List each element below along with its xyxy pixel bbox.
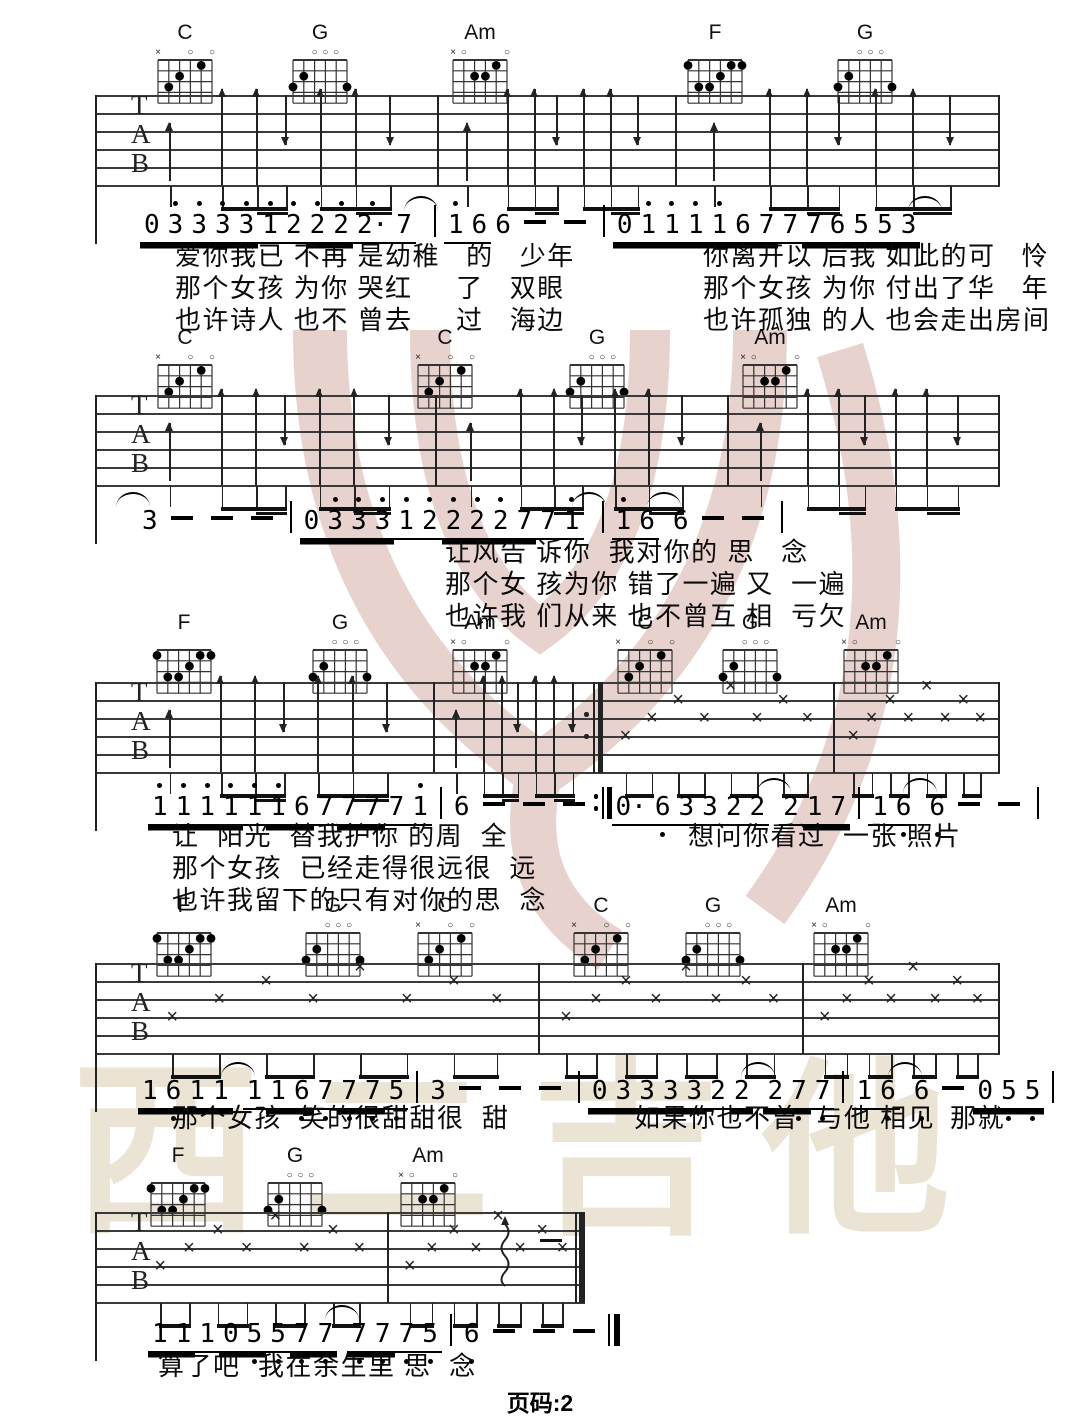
octave-dot-above bbox=[291, 201, 296, 206]
octave-dot-above bbox=[669, 201, 674, 206]
mute-stroke-x: × bbox=[213, 989, 225, 1009]
melody-barline bbox=[603, 205, 605, 237]
svg-text:○: ○ bbox=[705, 920, 711, 931]
chord-name: F bbox=[148, 612, 220, 634]
chord-name: Am bbox=[392, 1145, 464, 1167]
melody-barline bbox=[1037, 787, 1039, 819]
tie-arc bbox=[647, 492, 681, 507]
mute-stroke-x: × bbox=[646, 708, 658, 728]
melody-dash bbox=[998, 802, 1020, 806]
melody-dash bbox=[211, 516, 233, 520]
strum-up-arrow bbox=[470, 423, 472, 481]
tie-arc bbox=[757, 778, 791, 793]
tab-letter-a: A bbox=[131, 989, 151, 1016]
mute-stroke-x: × bbox=[819, 1007, 831, 1027]
tie-arc bbox=[903, 778, 937, 793]
strum-down-arrow bbox=[637, 95, 639, 145]
svg-text:○: ○ bbox=[332, 637, 338, 648]
octave-dot-above bbox=[173, 201, 178, 206]
lyric-line: 那个女孩 笑的很甜甜很 甜 bbox=[172, 1098, 509, 1135]
strum-up-arrow bbox=[320, 89, 322, 185]
staff-line bbox=[95, 1017, 1000, 1019]
melody-barline bbox=[450, 1314, 452, 1346]
tab-letter-b: B bbox=[131, 737, 149, 764]
mute-stroke-x: × bbox=[929, 989, 941, 1009]
tab-letter-a: A bbox=[131, 708, 151, 735]
mute-stroke-x: × bbox=[260, 971, 272, 991]
mute-stroke-x: × bbox=[620, 726, 632, 746]
svg-text:○: ○ bbox=[715, 920, 721, 931]
staff-line bbox=[95, 167, 1000, 169]
svg-text:○: ○ bbox=[751, 352, 757, 363]
mute-stroke-x: × bbox=[958, 690, 970, 710]
chord-name: F bbox=[679, 22, 751, 44]
staff-line bbox=[95, 1035, 1000, 1037]
mute-stroke-x: × bbox=[241, 1238, 253, 1258]
chord-name: C bbox=[565, 895, 637, 917]
svg-text:○: ○ bbox=[335, 920, 341, 931]
strum-up-arrow bbox=[466, 123, 468, 181]
svg-text:○: ○ bbox=[447, 352, 453, 363]
strum-up-arrow bbox=[352, 676, 354, 772]
mute-stroke-x: × bbox=[885, 989, 897, 1009]
tab-letter-t: T bbox=[131, 679, 148, 706]
melody-note: 3 bbox=[371, 504, 395, 540]
strum-up-arrow bbox=[583, 89, 585, 185]
svg-text:○: ○ bbox=[504, 47, 510, 58]
mute-stroke-x: × bbox=[514, 1238, 526, 1258]
melody-barline bbox=[781, 501, 783, 533]
svg-text:○: ○ bbox=[452, 1170, 458, 1181]
svg-text:○: ○ bbox=[287, 1170, 293, 1181]
strum-up-arrow bbox=[255, 389, 257, 485]
mute-stroke-x: × bbox=[212, 1220, 224, 1240]
melody-note: 1 bbox=[148, 790, 172, 826]
strum-down-arrow bbox=[949, 95, 951, 145]
melody-note: 2 bbox=[418, 504, 442, 540]
mute-stroke-x: × bbox=[863, 971, 875, 991]
chord-name: G bbox=[677, 895, 749, 917]
svg-text:○: ○ bbox=[308, 1170, 314, 1181]
mute-stroke-x: × bbox=[710, 989, 722, 1009]
strum-up-arrow bbox=[254, 676, 256, 772]
melody-note: 3 bbox=[138, 504, 162, 538]
tie-arc bbox=[572, 492, 606, 507]
strum-up-arrow bbox=[319, 389, 321, 485]
svg-text:○: ○ bbox=[603, 920, 609, 931]
svg-text:○: ○ bbox=[852, 637, 858, 648]
svg-text:○: ○ bbox=[589, 352, 595, 363]
tab-staff: TAB bbox=[95, 395, 1000, 486]
lyric-line: 也许我 们从来 也不曾互 相 亏欠 bbox=[445, 596, 846, 633]
tab-staff: TAB×××××××××××××××× bbox=[95, 1212, 585, 1303]
melody-dash bbox=[171, 516, 193, 520]
mute-stroke-x: × bbox=[536, 1220, 548, 1240]
svg-text:×: × bbox=[811, 920, 817, 931]
octave-dot-below bbox=[660, 832, 665, 837]
mute-stroke-x: × bbox=[154, 1256, 166, 1276]
strum-up-arrow bbox=[926, 389, 928, 485]
strum-down-arrow bbox=[386, 682, 388, 732]
strum-up-arrow bbox=[317, 676, 319, 772]
mute-stroke-x: × bbox=[183, 1238, 195, 1258]
staff-line bbox=[95, 449, 1000, 451]
melody-dash bbox=[958, 802, 980, 806]
melody-note: 3 bbox=[323, 504, 347, 540]
melody-dash bbox=[524, 220, 546, 224]
svg-text:○: ○ bbox=[461, 47, 467, 58]
mute-stroke-x: × bbox=[699, 708, 711, 728]
svg-text:○: ○ bbox=[187, 352, 193, 363]
mute-stroke-x: × bbox=[560, 1007, 572, 1027]
mute-stroke-x: × bbox=[921, 676, 933, 696]
svg-text:×: × bbox=[415, 920, 421, 931]
melody-dash bbox=[702, 516, 724, 520]
octave-dot-above bbox=[339, 201, 344, 206]
svg-text:×: × bbox=[415, 352, 421, 363]
lyric-line: 如果你也不曾 与他 相见 bbox=[634, 1098, 935, 1135]
svg-text:○: ○ bbox=[322, 47, 328, 58]
svg-text:○: ○ bbox=[610, 352, 616, 363]
strum-down-arrow bbox=[864, 395, 866, 445]
octave-dot-above bbox=[498, 497, 503, 502]
mute-stroke-x: × bbox=[470, 1238, 482, 1258]
melody-note: 0 bbox=[613, 208, 637, 244]
chord-name: Am bbox=[444, 22, 516, 44]
octave-dot-above bbox=[646, 201, 651, 206]
strum-up-arrow bbox=[838, 389, 840, 485]
strum-up-arrow bbox=[455, 710, 457, 768]
strum-down-arrow bbox=[572, 682, 574, 732]
melody-barline bbox=[290, 501, 292, 533]
melody-dash bbox=[493, 1329, 515, 1333]
octave-dot-below bbox=[1006, 1116, 1011, 1121]
tie-arc bbox=[404, 196, 438, 211]
staff-line bbox=[95, 185, 1000, 187]
strum-up-arrow bbox=[806, 89, 808, 185]
tab-letter-t: T bbox=[131, 392, 148, 419]
octave-dot-above bbox=[197, 201, 202, 206]
mute-stroke-x: × bbox=[354, 1238, 366, 1258]
tab-letter-a: A bbox=[131, 1238, 151, 1265]
tie-arc bbox=[741, 1062, 775, 1077]
octave-dot-above bbox=[228, 783, 233, 788]
melody-note: 3 bbox=[347, 504, 371, 540]
chord-name: G bbox=[284, 22, 356, 44]
strum-down-arrow bbox=[284, 395, 286, 445]
mute-stroke-x: × bbox=[307, 989, 319, 1009]
tab-letter-b: B bbox=[131, 150, 149, 177]
tie-arc bbox=[221, 1062, 255, 1077]
melody-note: 1 bbox=[138, 1074, 162, 1110]
mute-stroke-x: × bbox=[426, 1238, 438, 1258]
svg-text:○: ○ bbox=[794, 352, 800, 363]
melody-barline bbox=[440, 787, 442, 819]
tab-letter-t: T bbox=[131, 92, 148, 119]
octave-dot-above bbox=[205, 783, 210, 788]
octave-dot-above bbox=[621, 497, 626, 502]
svg-text:○: ○ bbox=[409, 1170, 415, 1181]
tab-letter-t: T bbox=[131, 1209, 148, 1236]
mute-stroke-x: × bbox=[620, 971, 632, 991]
strum-up-arrow bbox=[912, 89, 914, 185]
chord-name: G bbox=[829, 22, 901, 44]
strum-up-arrow bbox=[534, 89, 536, 185]
staff-line bbox=[95, 718, 1000, 720]
strum-down-arrow bbox=[285, 95, 287, 145]
melody-dash bbox=[523, 802, 545, 806]
svg-text:○: ○ bbox=[187, 47, 193, 58]
strum-up-arrow bbox=[483, 676, 485, 772]
svg-text:○: ○ bbox=[333, 47, 339, 58]
mute-stroke-x: × bbox=[884, 690, 896, 710]
melody-repeat-bar bbox=[594, 787, 612, 819]
octave-dot-above bbox=[252, 783, 257, 788]
mute-stroke-x: × bbox=[768, 989, 780, 1009]
melody-barline bbox=[578, 1071, 580, 1103]
melody-note: 5 bbox=[1021, 1074, 1045, 1110]
octave-dot-below bbox=[1030, 1116, 1035, 1121]
tie-arc bbox=[908, 196, 942, 211]
melody-barline bbox=[858, 787, 860, 819]
melody-dash bbox=[564, 220, 586, 224]
svg-text:○: ○ bbox=[469, 352, 475, 363]
svg-text:×: × bbox=[155, 352, 161, 363]
octave-dot-above bbox=[453, 201, 458, 206]
strum-down-arrow bbox=[581, 395, 583, 445]
strum-up-arrow bbox=[713, 123, 715, 181]
mute-stroke-x: × bbox=[972, 989, 984, 1009]
mute-stroke-x: × bbox=[841, 989, 853, 1009]
strum-down-arrow bbox=[388, 395, 390, 445]
strum-up-arrow bbox=[355, 89, 357, 185]
melody-dash bbox=[459, 1086, 481, 1090]
octave-dot-above bbox=[404, 497, 409, 502]
melody-dash bbox=[742, 516, 764, 520]
melody-note: 1 bbox=[637, 208, 661, 244]
mute-stroke-x: × bbox=[801, 708, 813, 728]
repeat-dot bbox=[584, 734, 589, 739]
tab-letter-b: B bbox=[131, 1018, 149, 1045]
staff-line bbox=[95, 754, 1000, 756]
svg-text:○: ○ bbox=[209, 47, 215, 58]
mute-stroke-x: × bbox=[866, 708, 878, 728]
octave-dot-above bbox=[427, 497, 432, 502]
melody-note: 0· bbox=[612, 790, 651, 826]
mute-stroke-x: × bbox=[298, 1238, 310, 1258]
lyric-line: 也许我留下的只有对你的思 念 bbox=[172, 880, 547, 917]
lyric-line: 那就 bbox=[950, 1098, 1005, 1135]
staff-line bbox=[95, 113, 1000, 115]
melody-note: 1 bbox=[660, 208, 684, 244]
mute-stroke-x: × bbox=[448, 971, 460, 991]
strum-up-arrow bbox=[807, 389, 809, 485]
strum-up-arrow bbox=[760, 423, 762, 481]
chord-name: G bbox=[561, 327, 633, 349]
octave-dot-above bbox=[717, 201, 722, 206]
lyric-line: 也许孤独 的人 也会走出房间 bbox=[703, 300, 1050, 337]
strum-up-arrow bbox=[221, 389, 223, 485]
strum-up-arrow bbox=[553, 676, 555, 772]
strum-down-arrow bbox=[957, 395, 959, 445]
mute-stroke-x: × bbox=[902, 708, 914, 728]
staff-line bbox=[95, 131, 1000, 133]
staff-line bbox=[95, 1302, 585, 1304]
svg-text:○: ○ bbox=[647, 637, 653, 648]
octave-dot-above bbox=[380, 497, 385, 502]
tab-letter-b: B bbox=[131, 450, 149, 477]
tab-staff: TAB bbox=[95, 95, 1000, 186]
svg-text:○: ○ bbox=[726, 920, 732, 931]
svg-text:○: ○ bbox=[209, 352, 215, 363]
strum-up-arrow bbox=[553, 389, 555, 485]
svg-text:○: ○ bbox=[297, 1170, 303, 1181]
lyric-line: 想问你看过 一张 照片 bbox=[688, 816, 962, 853]
strum-up-arrow bbox=[614, 389, 616, 485]
mute-stroke-x: × bbox=[680, 957, 692, 977]
mute-stroke-x: × bbox=[907, 957, 919, 977]
staff-line bbox=[95, 149, 1000, 151]
chord-name: C bbox=[149, 22, 221, 44]
svg-text:×: × bbox=[155, 47, 161, 58]
tie-arc bbox=[325, 1305, 359, 1320]
staff-line bbox=[95, 1212, 585, 1214]
chord-name: F bbox=[142, 1145, 214, 1167]
melody-barline bbox=[1052, 1071, 1054, 1103]
chord-name: G bbox=[259, 1145, 331, 1167]
staff-line bbox=[95, 1053, 1000, 1055]
svg-text:○: ○ bbox=[447, 920, 453, 931]
staff-line bbox=[95, 772, 1000, 774]
staff-line bbox=[95, 963, 1000, 965]
mute-stroke-x: × bbox=[847, 726, 859, 746]
strum-up-arrow bbox=[501, 676, 503, 772]
mute-stroke-x: × bbox=[751, 708, 763, 728]
octave-dot-above bbox=[418, 783, 423, 788]
melody-dash bbox=[251, 516, 273, 520]
staff-line bbox=[95, 682, 1000, 684]
svg-text:×: × bbox=[450, 637, 456, 648]
mute-stroke-x: × bbox=[354, 957, 366, 977]
staff-line bbox=[95, 999, 1000, 1001]
mute-stroke-x: × bbox=[491, 989, 503, 1009]
mute-stroke-x: × bbox=[270, 1206, 282, 1226]
octave-dot-above bbox=[333, 497, 338, 502]
mute-stroke-x: × bbox=[327, 1220, 339, 1240]
svg-text:×: × bbox=[571, 920, 577, 931]
svg-text:○: ○ bbox=[342, 637, 348, 648]
svg-text:○: ○ bbox=[763, 637, 769, 648]
strum-up-arrow bbox=[169, 123, 171, 181]
strum-up-arrow bbox=[169, 423, 171, 481]
mute-stroke-x: × bbox=[777, 690, 789, 710]
octave-dot-above bbox=[276, 783, 281, 788]
octave-dot-above bbox=[244, 201, 249, 206]
octave-dot-above bbox=[220, 201, 225, 206]
staff-line bbox=[95, 700, 1000, 702]
melody-note: 0 bbox=[300, 504, 324, 540]
svg-text:×: × bbox=[398, 1170, 404, 1181]
strum-down-arrow bbox=[838, 95, 840, 145]
octave-dot-above bbox=[475, 497, 480, 502]
chord-name: G bbox=[304, 612, 376, 634]
mute-stroke-x: × bbox=[404, 1256, 416, 1276]
melody-dash bbox=[539, 1086, 561, 1090]
svg-text:○: ○ bbox=[895, 637, 901, 648]
octave-dot-above bbox=[451, 497, 456, 502]
tab-staff: TAB×××××××××××××××× bbox=[95, 682, 1000, 773]
strum-up-arrow bbox=[169, 710, 171, 768]
strum-up-arrow bbox=[769, 89, 771, 185]
octave-dot-above bbox=[315, 201, 320, 206]
mute-stroke-x: × bbox=[740, 971, 752, 991]
melody-note: 0 bbox=[140, 208, 164, 244]
mute-stroke-x: × bbox=[951, 971, 963, 991]
svg-text:○: ○ bbox=[504, 637, 510, 648]
strum-up-arrow bbox=[507, 89, 509, 185]
svg-text:×: × bbox=[841, 637, 847, 648]
mute-stroke-x: × bbox=[725, 676, 737, 696]
strum-up-arrow bbox=[895, 389, 897, 485]
mute-stroke-x: × bbox=[672, 690, 684, 710]
mute-stroke-x: × bbox=[974, 708, 986, 728]
strum-down-arrow bbox=[517, 682, 519, 732]
svg-text:○: ○ bbox=[325, 920, 331, 931]
octave-dot-above bbox=[693, 201, 698, 206]
svg-text:○: ○ bbox=[865, 920, 871, 931]
mute-stroke-x: × bbox=[590, 989, 602, 1009]
melody-dash bbox=[563, 802, 585, 806]
svg-text:○: ○ bbox=[878, 47, 884, 58]
lyric-line: 也许诗人 也不 曾去 过 海边 bbox=[175, 300, 565, 337]
strum-up-arrow bbox=[535, 676, 537, 772]
mute-stroke-x: × bbox=[939, 708, 951, 728]
tie-arc bbox=[116, 492, 150, 507]
svg-text:×: × bbox=[740, 352, 746, 363]
svg-text:○: ○ bbox=[346, 920, 352, 931]
tab-letter-t: T bbox=[131, 960, 148, 987]
strum-up-arrow bbox=[353, 389, 355, 485]
melody-dash bbox=[533, 1329, 555, 1333]
mute-stroke-x: × bbox=[448, 1220, 460, 1240]
staff-line bbox=[95, 736, 1000, 738]
page-number: 页码:2 bbox=[0, 1384, 1080, 1418]
svg-text:○: ○ bbox=[312, 47, 318, 58]
melody-dash bbox=[499, 1086, 521, 1090]
melody-final-bar bbox=[604, 1314, 622, 1346]
svg-text:×: × bbox=[615, 637, 621, 648]
arpeggio-wavy-line bbox=[497, 1216, 513, 1292]
tie-arc bbox=[888, 1062, 922, 1077]
svg-text:○: ○ bbox=[742, 637, 748, 648]
strum-up-arrow bbox=[221, 89, 223, 185]
strum-up-arrow bbox=[256, 89, 258, 185]
octave-dot-above bbox=[268, 201, 273, 206]
notation-area: C×○○G○○○Am×○○FG○○○TAB0333312222·71660111… bbox=[0, 0, 1080, 1420]
melody-dash bbox=[573, 1329, 595, 1333]
tab-staff: TAB×××××××××××××××××××××××× bbox=[95, 963, 1000, 1054]
staff-line bbox=[95, 467, 1000, 469]
strum-up-arrow bbox=[520, 389, 522, 485]
svg-text:○: ○ bbox=[353, 637, 359, 648]
melody-note: 6 bbox=[651, 790, 675, 826]
melody-dash bbox=[942, 1086, 964, 1090]
svg-text:○: ○ bbox=[857, 47, 863, 58]
strum-up-arrow bbox=[648, 389, 650, 485]
melody-dash bbox=[483, 802, 505, 806]
strum-up-arrow bbox=[875, 89, 877, 185]
repeat-dot bbox=[584, 712, 589, 717]
